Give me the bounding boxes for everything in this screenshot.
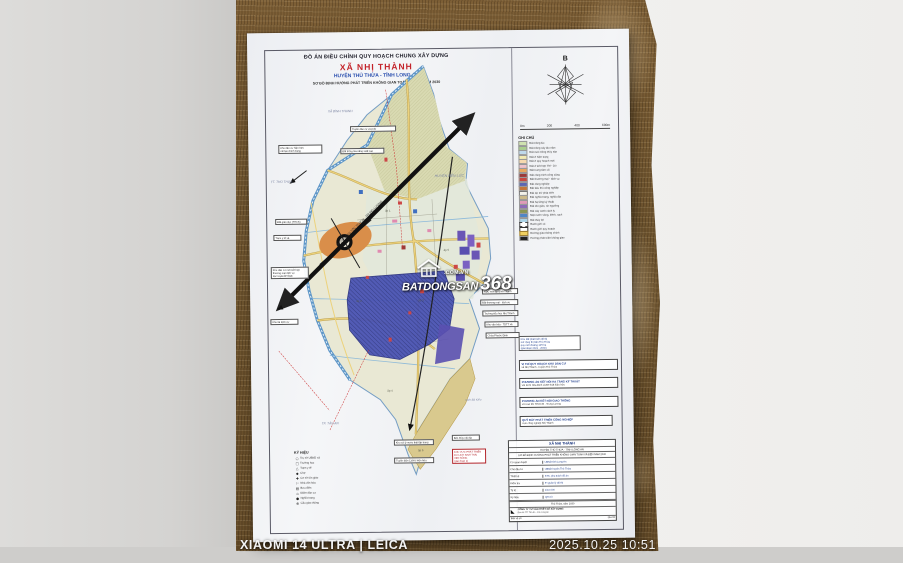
scale-bar: 0m 200 400 600m — [520, 123, 610, 131]
info-box: PHƯƠNG ÁN KẾT NỐI GIAO THÔNG với cao tốc… — [519, 396, 618, 408]
tt-row-key: Cơ quan duyệt — [509, 460, 543, 463]
label-tp-tan-an: TP. TÂN AN — [322, 421, 340, 425]
callout-box: Khu dân cư mới kết hợp thương mại dịch v… — [271, 267, 309, 279]
symbol-label: Nghĩa trang — [301, 497, 315, 500]
legend-label: Đường giao thông chính — [530, 232, 559, 235]
legend-label: Đất nuôi trồng thủy sản — [529, 151, 557, 154]
callout-box: Khu văn hóa - TDTT xã — [484, 321, 518, 327]
legend-label: Đất thương mại - dịch vụ — [530, 178, 560, 181]
info-box-sub: cụm công nghiệp Nhị Thành — [522, 421, 610, 425]
tt-row-key: Chủ đầu tư — [509, 467, 543, 470]
legend-label: Đất công trình công cộng — [530, 173, 560, 176]
tt-row-value: P. Quản lý đô thị — [543, 481, 563, 484]
legend-label: Đất công nghiệp — [530, 182, 550, 185]
background-wall-left — [0, 0, 243, 563]
tt-row-key: Kiểm tra — [509, 481, 543, 484]
legend-label: Đất tôn giáo, tín ngưỡng — [530, 205, 559, 208]
hamlet-label: ấp 5 — [444, 248, 450, 252]
callout-box: Trường tiểu học Nhị Thành — [482, 310, 518, 316]
label-huyen-ben-luc: HUYỆN BẾN LỨC — [435, 173, 465, 178]
hamlet-label: ấp 3 — [418, 298, 424, 302]
tt-row-value: UBND huyện Thủ Thừa — [543, 467, 571, 470]
company-logo-icon: ◣ — [511, 510, 518, 515]
hamlet-label: ấp 6 — [418, 448, 424, 452]
legend-list: Đất trồng lúa Đất trồng cây lâu năm Đất … — [518, 140, 615, 240]
tt-company-sub: Địa chỉ: TP. Tân An - tỉnh Long An — [518, 512, 549, 514]
photo-of-planning-map: ĐỒ ÁN ĐIỀU CHỈNH QUY HOẠCH CHUNG XÂY DỰN… — [0, 0, 903, 563]
compass-rose-icon — [543, 62, 588, 107]
map-frame: ĐỒ ÁN ĐIỀU CHỈNH QUY HOẠCH CHUNG XÂY DỰN… — [264, 46, 624, 534]
tt-footer: Bản vẽ số QH-03 — [510, 516, 616, 521]
symbols-legend: KÝ HIỆU ○ Trụ sở UBND xã □ Trường học — [294, 450, 369, 506]
callout-box: Khu tái định cư — [270, 319, 298, 325]
scale-tick: 400 — [574, 123, 579, 127]
callout-box: Tuyến điện 110kV hiện hữu — [394, 457, 434, 463]
callout-box: Đất trồng lúa năng suất cao — [340, 148, 384, 155]
legend-label: Đất nghĩa trang, nghĩa địa — [530, 196, 561, 199]
tt-rows: Cơ quan duyệt UBND tỉnh Long An Chủ đầu … — [509, 458, 616, 502]
legend-label: Đất tiểu thủ công nghiệp — [530, 187, 559, 190]
legend-label: Ranh giới xã — [530, 223, 545, 226]
callout-box: Đất giáo dục (THCS) — [275, 219, 307, 225]
legend-label: Đất hạ tầng kỹ thuật — [530, 200, 554, 203]
camera-watermark-model: XIAOMI 14 ULTRA | LEICA — [240, 538, 408, 554]
tt-row: Ký hiệu QH-03 — [510, 493, 616, 501]
tt-row-value: QH-03 — [544, 495, 553, 498]
callout-box: Trạm y tế xã — [273, 235, 301, 241]
symbol-label: Cầu giao thông — [301, 502, 319, 505]
callout-box: Đất thương mại - dịch vụ — [480, 299, 518, 305]
hamlet-label: ấp 1 — [385, 209, 391, 213]
legend-label: Đất trồng lúa — [529, 142, 544, 145]
tt-company: CÔNG TY TƯ VẤN THIẾT KẾ XÂY DỰNG Địa chỉ… — [518, 509, 564, 515]
tt-row-key: Ký hiệu — [510, 495, 544, 498]
compass-rose: B — [543, 55, 588, 112]
legend-label: Đất trung tâm xã — [530, 169, 550, 172]
note-group-box: Khu đất phát triển đô thị mở rộng thị tr… — [519, 335, 581, 351]
callout-box: KHU VỰC PHÁT TRIỂN DU LỊCH SINH THÁI VEN… — [452, 448, 486, 463]
legend-row: Hướng phát triển không gian — [519, 235, 615, 241]
hamlet-label: ấp 2 — [356, 299, 362, 303]
scale-tick: 200 — [547, 124, 552, 128]
scale-bar-line — [520, 128, 610, 130]
legend-label: Ranh giới quy hoạch — [530, 227, 555, 230]
house-icon — [416, 259, 442, 277]
legend-label: Đất ở hiện trạng — [529, 155, 548, 158]
symbol-row: ⊕ Cầu giao thông — [295, 500, 369, 506]
title-block-table: XÃ NHỊ THÀNH HUYỆN THỦ THỪA - TỈNH LONG … — [508, 439, 617, 522]
label-water-south: rạch Bà Kiểu — [465, 398, 482, 402]
camera-watermark-datetime: 2025.10.25 10:51 — [548, 538, 656, 554]
info-box: QUỸ ĐẤT PHÁT TRIỂN CÔNG NGHIỆP cụm công … — [520, 415, 613, 427]
info-box-sub: với KCN Hòa Bình và ĐT.818 hiện hữu — [522, 383, 616, 387]
hamlet-label: ấp 4 — [387, 389, 393, 393]
tt-company-name: CÔNG TY TƯ VẤN THIẾT KẾ XÂY DỰNG — [518, 508, 564, 512]
scale-tick: 600m — [602, 123, 610, 127]
tt-foot-left: Bản vẽ số — [511, 517, 522, 520]
map-paper-sheet: ĐỒ ÁN ĐIỀU CHỈNH QUY HOẠCH CHUNG XÂY DỰN… — [247, 29, 635, 543]
info-box-sub: với cao tốc TP.HCM - Trung Lương — [522, 402, 616, 406]
symbol-label: Trụ sở UBND xã — [300, 456, 320, 459]
callout-box: Chùa Phước Định — [486, 332, 520, 338]
legend-label: Đất ở quy hoạch mới — [529, 160, 554, 163]
legend-title: GHI CHÚ — [518, 135, 614, 140]
symbols-list: ○ Trụ sở UBND xã □ Trường học △ Trạm y t… — [294, 455, 369, 506]
symbol-label: Nhà văn hóa — [300, 482, 315, 485]
tt-row-key: Thiết kế — [509, 474, 543, 477]
info-box: PHƯƠNG ÁN KẾT NỐI HẠ TẦNG KỸ THUẬT với K… — [519, 377, 618, 389]
label-xa-binh-thanh: XÃ BÌNH THẠNH — [327, 108, 353, 113]
callout-box: Tuyến dân cư vượt lũ — [350, 126, 396, 133]
symbol-label: Trường học — [300, 462, 314, 465]
legend-label: Đất dự trữ phát triển — [530, 191, 554, 194]
legend-swatch — [519, 236, 528, 241]
tt-row-key: Tỷ lệ — [509, 488, 543, 491]
legend-panel: GHI CHÚ Đất trồng lúa Đất trồng cây lâu … — [518, 135, 615, 241]
symbol-label: Chợ — [300, 472, 305, 475]
watermark-number: 368 — [480, 276, 512, 292]
watermark-domain: .COM.VN — [444, 270, 469, 276]
legend-label: Đất trồng cây lâu năm — [529, 146, 555, 149]
info-box: VỊ TRÍ QUY HOẠCH KHU DÂN CƯ xã Nhị Thành… — [519, 359, 618, 371]
label-tt-thu-thua: TT. THỦ THỪA — [271, 179, 293, 184]
legend-label: Mặt nước sông, kênh, rạch — [530, 214, 562, 217]
symbol-label: Bưu điện — [300, 487, 311, 490]
tt-foot-right: QH-03 — [608, 516, 615, 519]
tt-row-value: KTS. phụ trách đồ án — [543, 474, 568, 477]
scale-tick: 0m — [520, 124, 524, 128]
symbol-label: Điểm dân cư — [301, 492, 316, 495]
legend-label: Đất cây xanh cách ly — [530, 209, 555, 212]
info-box-sub: xã Nhị Thành - huyện Thủ Thừa — [521, 365, 615, 369]
tt-row-value: 1/10.000 — [543, 488, 554, 491]
callout-box: Khu xử lý nước thải tập trung — [394, 439, 434, 445]
callout-box: Khu dân cư hiện hữu cải tạo chỉnh trang — [278, 144, 322, 154]
callout-box: Bến thủy nội địa — [452, 435, 480, 441]
watermark-brand: BATDONGSAN — [402, 281, 478, 294]
symbol-label: Cơ sở tôn giáo — [300, 477, 318, 480]
legend-label: Đất thủy lợi — [530, 218, 544, 221]
legend-label: Đất ở kết hợp TM - DV — [530, 164, 557, 167]
legend-label: Hướng phát triển không gian — [530, 236, 564, 239]
tt-row-value: UBND tỉnh Long An — [543, 460, 566, 463]
symbol-label: Trạm y tế — [300, 467, 311, 470]
realtor-watermark: .COM.VN BATDONGSAN 368 — [402, 258, 518, 293]
